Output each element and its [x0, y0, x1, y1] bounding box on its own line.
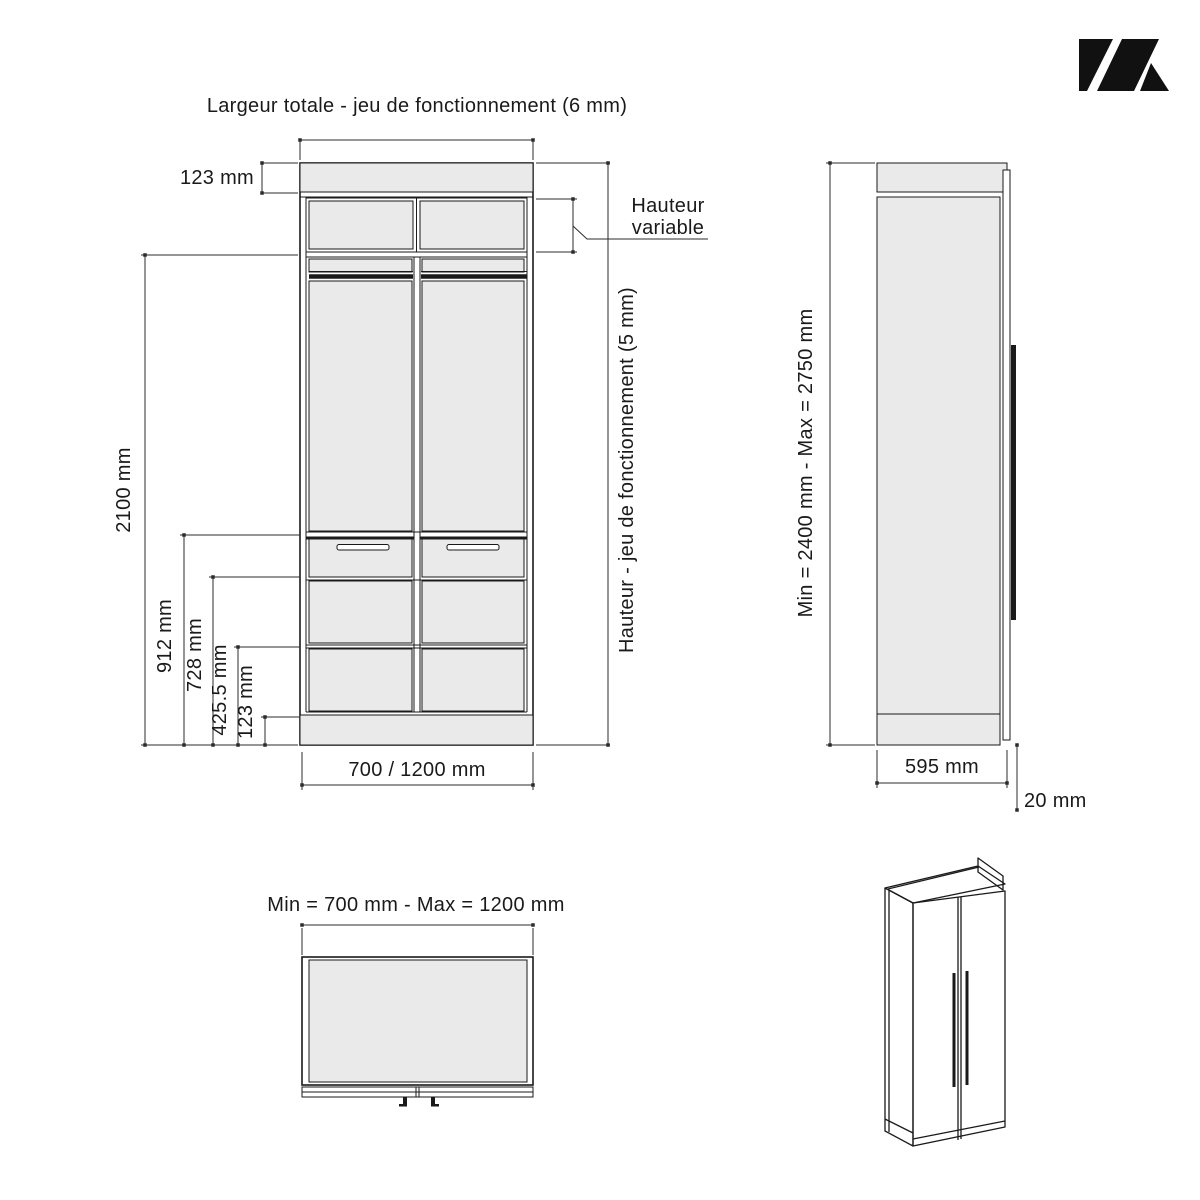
dim-label-height-clearance: Hauteur - jeu de fonctionnement (5 mm): [616, 287, 638, 653]
front-width-title: Largeur totale - jeu de fonctionnement (…: [207, 95, 627, 117]
side-section-view: Min = 2400 mm - Max = 2750 mm 595 mm 20 …: [795, 163, 1087, 812]
persp-door-split: [958, 897, 961, 1140]
drawer-handle-slot-right: [447, 545, 499, 551]
shelf-box-left-1: [309, 581, 412, 643]
variable-panel-left: [309, 201, 413, 249]
front-elevation-view: [300, 163, 533, 745]
variable-height-label-1: Hauteur: [631, 195, 704, 217]
ext-plan-width: [302, 928, 533, 955]
shelf-box-right-1: [422, 581, 524, 643]
plan-interior: [309, 960, 527, 1082]
wardrobe-dimension-diagram: Largeur totale - jeu de fonctionnement (…: [0, 0, 1200, 1200]
dim-label-plinth: 123 mm: [235, 665, 257, 739]
dim-label-side-height: Min = 2400 mm - Max = 2750 mm: [795, 309, 817, 618]
plinth-panel: [300, 715, 533, 745]
side-door-handle-bar: [1011, 345, 1016, 620]
top-box-left: [309, 259, 412, 272]
side-cap-lines: [877, 192, 1007, 197]
side-plinth: [877, 714, 1000, 745]
tall-panel-right: [422, 281, 524, 531]
persp-top-face: [885, 866, 1005, 903]
top-box-right: [422, 259, 524, 272]
plan-handle-left-foot: [399, 1104, 407, 1107]
shelf-box-right-2: [422, 649, 524, 711]
variable-panel-right: [420, 201, 524, 249]
persp-door-face: [913, 891, 1005, 1146]
plan-view: Min = 700 mm - Max = 1200 mm: [267, 894, 564, 1107]
ext-top-width: [300, 140, 533, 160]
plan-handle-right: [431, 1097, 435, 1105]
shelf-box-left-2: [309, 649, 412, 711]
drawer-handle-slot-left: [337, 545, 389, 551]
dim-label-912: 912 mm: [154, 599, 176, 673]
plan-width-title: Min = 700 mm - Max = 1200 mm: [267, 894, 564, 916]
side-body-panel: [877, 197, 1000, 714]
ext-side-height: [826, 163, 875, 745]
perspective-view: [885, 858, 1005, 1146]
dim-label-side-depth: 595 mm: [905, 756, 979, 778]
persp-plinth-lines: [885, 1119, 1005, 1139]
ext-top-cap: [262, 163, 298, 193]
dim-label-728: 728 mm: [184, 618, 206, 692]
dim-label-bottom-width: 700 / 1200 mm: [348, 759, 485, 781]
dim-label-425: 425.5 mm: [209, 644, 231, 735]
tall-panel-left: [309, 281, 412, 531]
brand-logo-icon: [1079, 39, 1169, 91]
plan-handle-left: [403, 1097, 407, 1105]
dim-label-2100: 2100 mm: [113, 447, 135, 532]
dim-label-door-thickness: 20 mm: [1024, 790, 1087, 812]
plan-handle-right-foot: [431, 1104, 439, 1107]
variable-height-label-2: variable: [632, 217, 704, 239]
dim-label-top-cap: 123 mm: [180, 167, 254, 189]
technical-drawing-sheet: Largeur totale - jeu de fonctionnement (…: [0, 0, 1200, 1200]
side-door-edge: [1003, 170, 1010, 740]
persp-top-inner-line: [888, 867, 979, 889]
ext-variable-height: [536, 199, 577, 252]
side-top-cap: [877, 163, 1007, 192]
top-cap-panel: [300, 163, 533, 192]
